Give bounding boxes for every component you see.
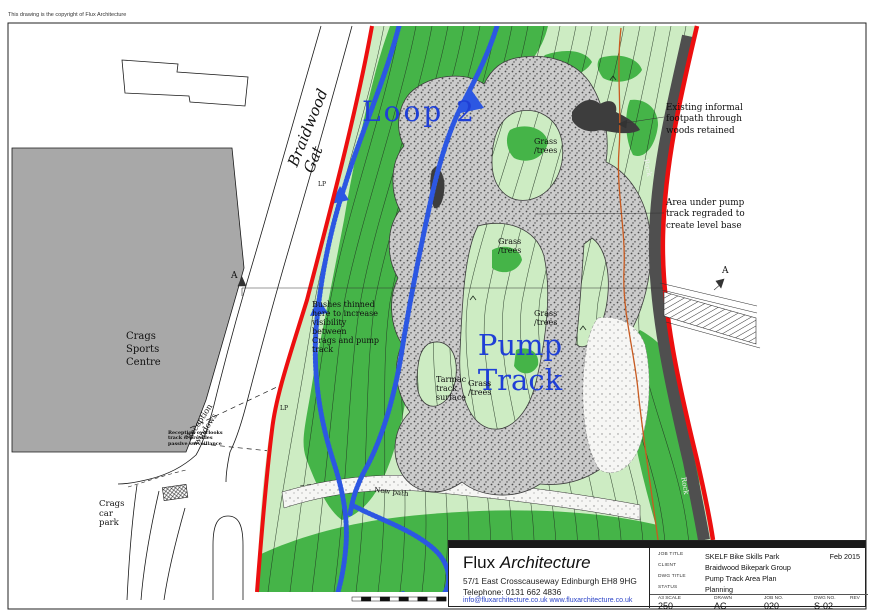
dwg-no-value: S-02	[814, 601, 833, 611]
title-block-firm-panel: Flux Architecture 57/1 East Crosscausewa…	[449, 548, 649, 608]
client-value: Braidwood Bikepark Group	[705, 563, 791, 572]
grass-trees-label: Grass /trees	[498, 238, 521, 256]
grass-trees-label: Grass /trees	[534, 138, 557, 156]
client-row: CLIENT Braidwood Bikepark Group	[650, 563, 868, 573]
footpath-annotation: Existing informal footpath through woods…	[666, 103, 786, 137]
rev-label: REV	[850, 596, 860, 601]
rock-label: Rock	[678, 477, 689, 496]
drawing-sheet: This drawing is the copyright of Flux Ar…	[0, 0, 873, 616]
dwg-title-value: Pump Track Area Plan	[705, 574, 777, 583]
client-label: CLIENT	[658, 563, 676, 568]
lamp-post-label: LP	[318, 182, 326, 189]
job-no-value: 020	[764, 601, 779, 611]
reception-note: Reception overlooks track & provides pas…	[168, 431, 223, 447]
regrade-annotation: Area under pump track regraded to create…	[666, 198, 786, 232]
firm-email-web: info@fluxarchitecture.co.uk www.fluxarch…	[463, 597, 632, 604]
site-plan-svg	[0, 0, 873, 616]
title-block-top-bar	[449, 541, 865, 548]
loop2-label: Loop 2	[362, 96, 477, 127]
section-marker-a-west: A	[231, 271, 238, 281]
scale-bar	[352, 597, 446, 601]
lamp-post-label: LP	[280, 406, 288, 413]
job-title-row: JOB TITLE SKELF Bike Skills Park Feb 201…	[650, 552, 868, 562]
firm-name-first: Flux	[463, 553, 495, 572]
section-marker-a-east: A	[722, 266, 729, 276]
firm-address: 57/1 East Crosscauseway Edinburgh EH8 9H…	[463, 576, 637, 586]
title-block: Flux Architecture 57/1 East Crosscausewa…	[448, 540, 866, 607]
car-park-label: Crags car park	[99, 500, 124, 529]
title-block-info-panel: JOB TITLE SKELF Bike Skills Park Feb 201…	[649, 548, 868, 608]
firm-phone: Telephone: 0131 662 4836	[463, 587, 561, 597]
dwg-title-row: DWG TITLE Pump Track Area Plan	[650, 574, 868, 584]
sports-centre-label: Crags Sports Centre	[126, 330, 161, 369]
status-value: Planning	[705, 585, 733, 594]
grass-trees-label: Grass /trees	[468, 380, 491, 398]
copyright-note: This drawing is the copyright of Flux Ar…	[8, 12, 126, 18]
grass-trees-label: Grass /trees	[534, 310, 557, 328]
job-title-label: JOB TITLE	[658, 552, 683, 557]
dwg-title-label: DWG TITLE	[658, 574, 686, 579]
job-title-value: SKELF Bike Skills Park	[705, 552, 779, 561]
firm-name-second: Architecture	[500, 553, 591, 572]
drawing-date: Feb 2015	[830, 552, 860, 561]
drawn-value: AC	[714, 601, 727, 611]
scale-value: 250	[658, 601, 673, 611]
title-block-divider	[650, 594, 868, 595]
tarmac-label: Tarmac track surface	[436, 376, 466, 403]
status-label: STATUS	[658, 585, 677, 590]
bushes-note: Bushes thinned here to increase visibili…	[312, 301, 382, 355]
firm-name: Flux Architecture	[463, 553, 591, 573]
